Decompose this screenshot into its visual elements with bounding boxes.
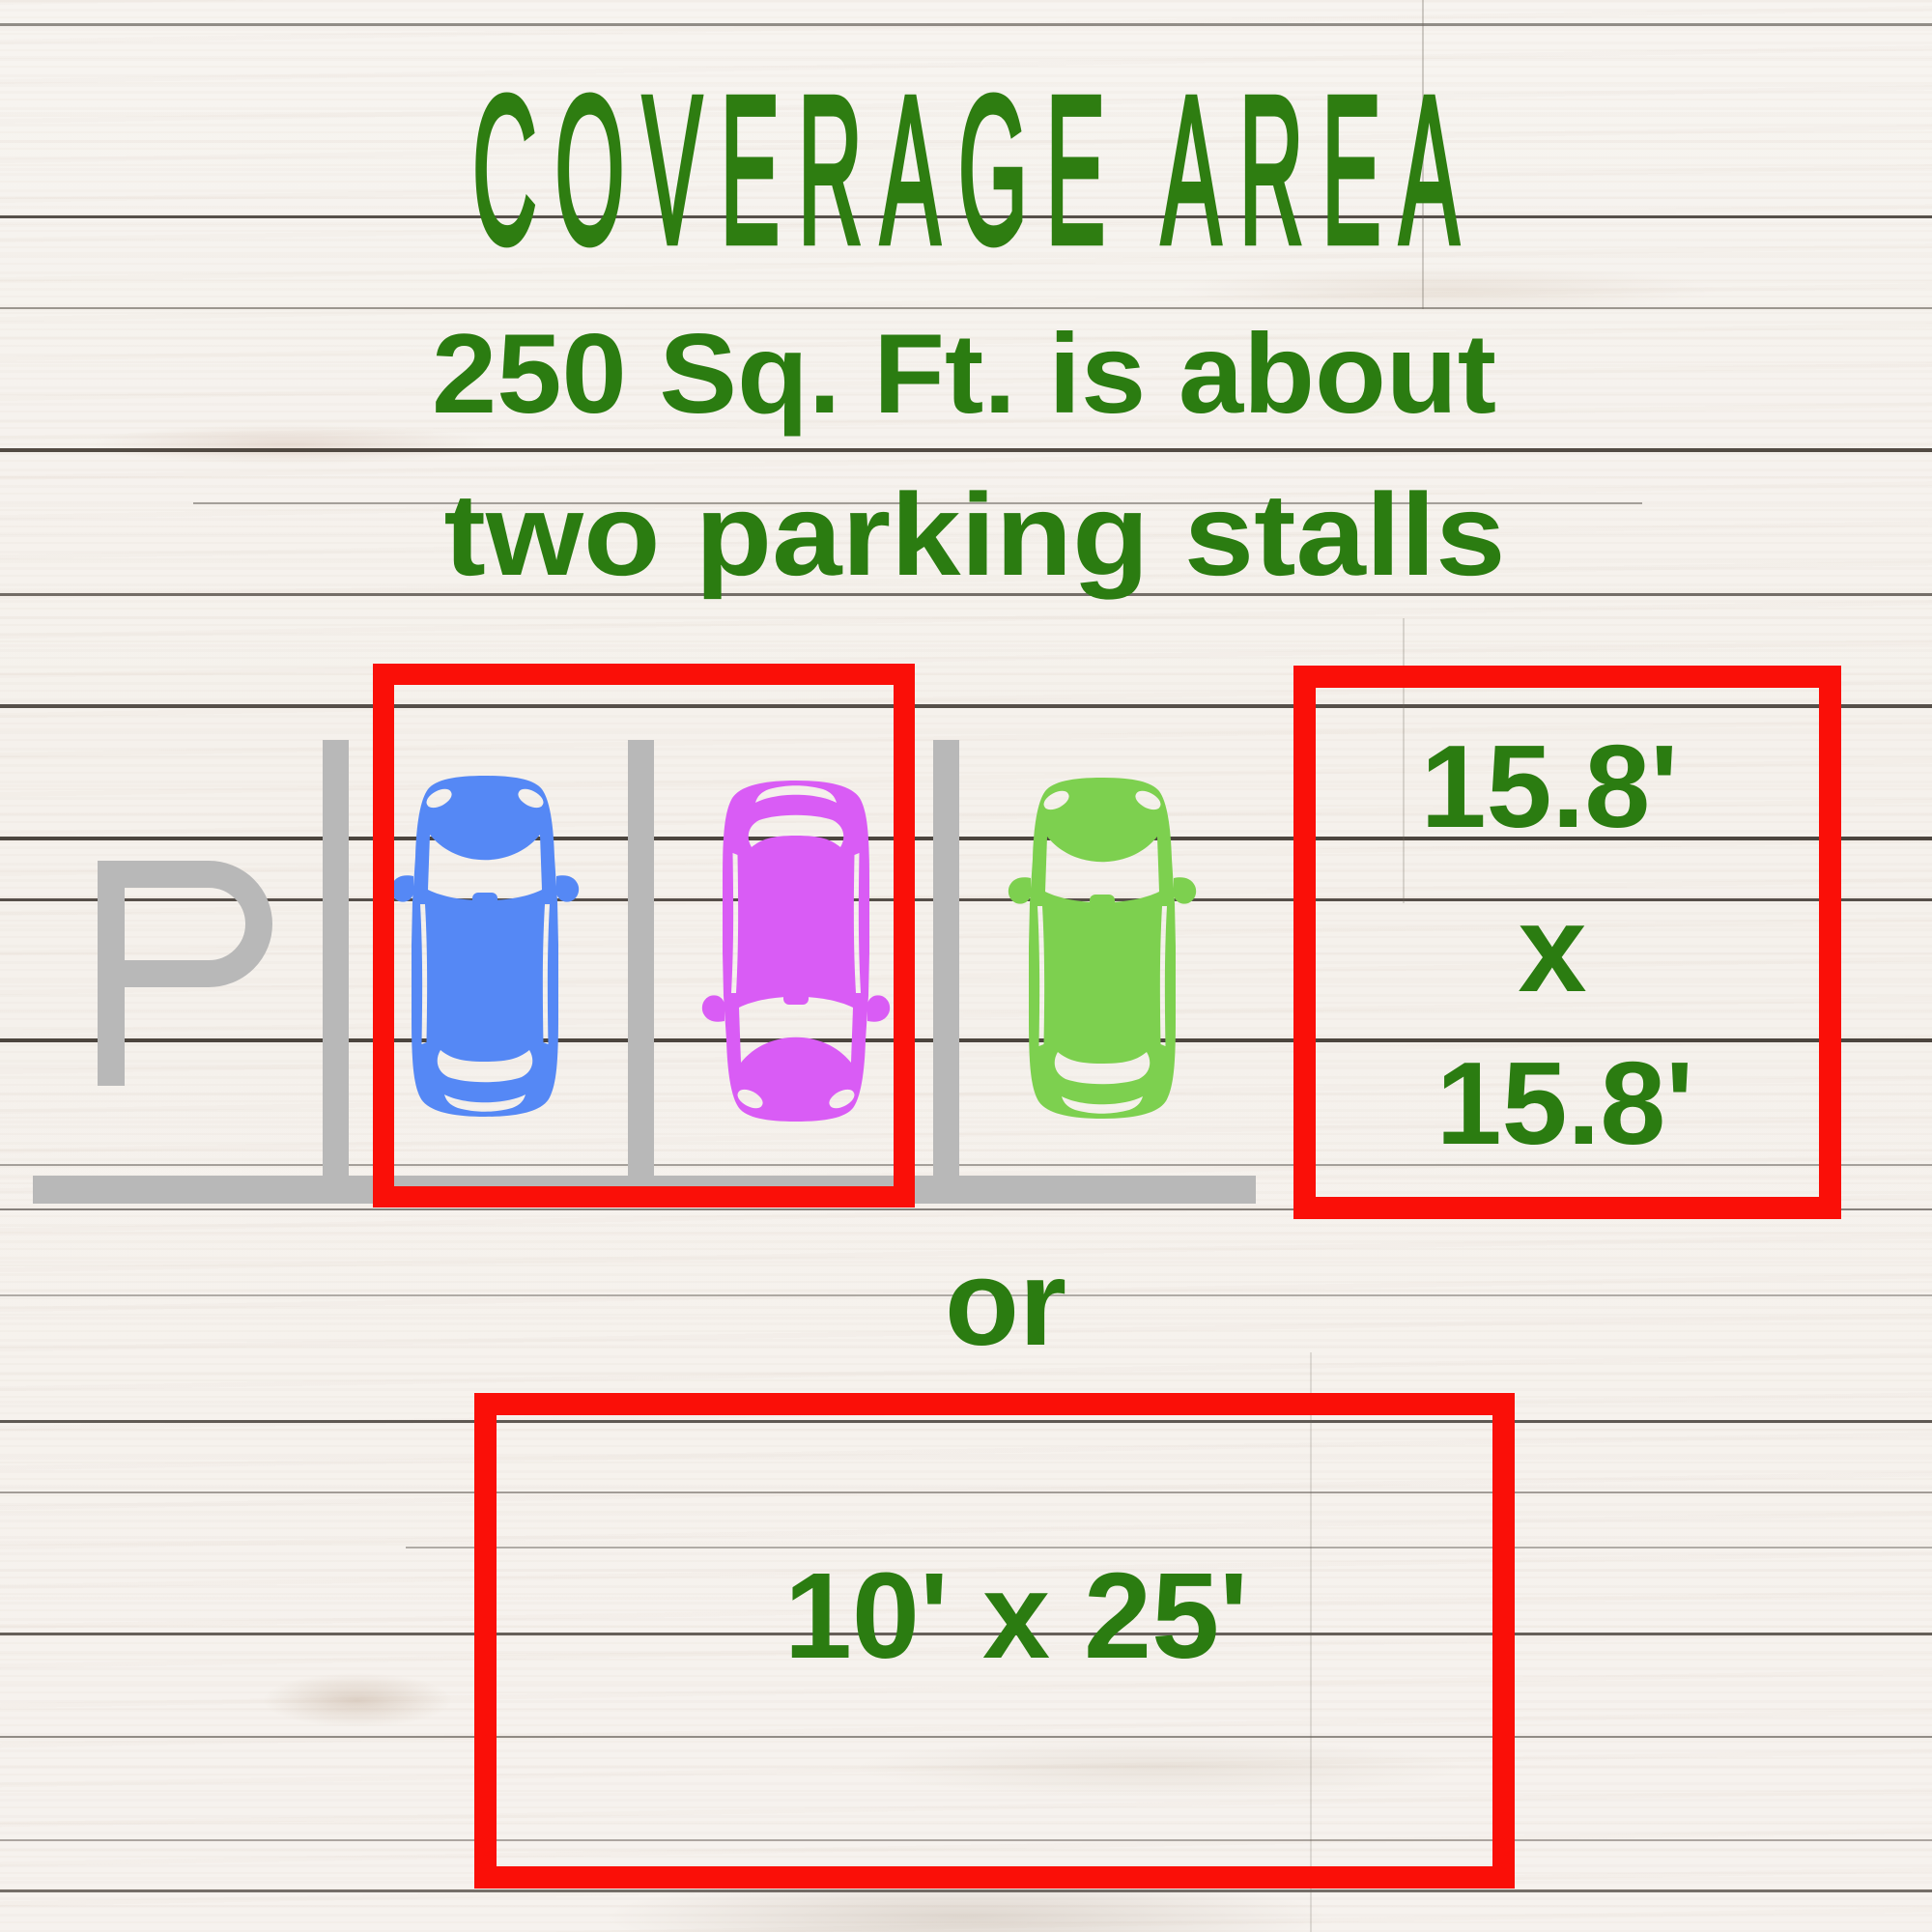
svg-text:10' x 25': 10' x 25' xyxy=(784,1548,1248,1684)
svg-text:250 Sq. Ft. is about: 250 Sq. Ft. is about xyxy=(432,310,1496,437)
svg-text:15.8': 15.8' xyxy=(1436,1037,1693,1169)
svg-text:15.8': 15.8' xyxy=(1421,721,1678,852)
svg-text:x: x xyxy=(1518,880,1586,1018)
svg-text:COVERAGE AREA: COVERAGE AREA xyxy=(472,53,1477,288)
svg-text:two parking stalls: two parking stalls xyxy=(444,469,1506,600)
svg-text:or: or xyxy=(945,1235,1066,1371)
